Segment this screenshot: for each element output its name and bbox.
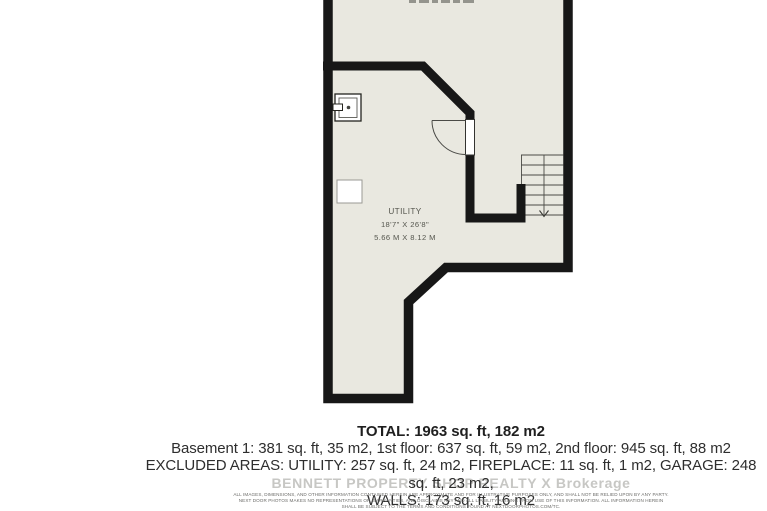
room-name-label: UTILITY xyxy=(388,207,421,216)
excluded-areas-line: EXCLUDED AREAS: UTILITY: 257 sq. ft, 24 … xyxy=(134,457,767,491)
room-dimensions-metric: 5.66 M X 8.12 M xyxy=(374,233,436,242)
disclaimer-line-3: SHALL BE SUBJECT TO THE TERMS AND CONDIT… xyxy=(134,504,767,510)
equipment-box xyxy=(337,180,362,203)
water-heater-fixture xyxy=(333,94,361,121)
floor-areas-line: Basement 1: 381 sq. ft, 35 m2, 1st floor… xyxy=(134,440,767,457)
basement-floorplan: UTILITY 18'7" X 26'8" 5.66 M X 8.12 M xyxy=(0,0,767,420)
disclaimer: ALL IMAGES, DIMENSIONS, AND OTHER INFORM… xyxy=(134,492,767,510)
floorplan-page: UTILITY 18'7" X 26'8" 5.66 M X 8.12 M BE… xyxy=(0,0,767,511)
room-dimensions-imperial: 18'7" X 26'8" xyxy=(381,220,429,229)
floorplan-outline xyxy=(328,0,568,399)
total-area-line: TOTAL: 1963 sq. ft, 182 m2 xyxy=(134,423,767,440)
